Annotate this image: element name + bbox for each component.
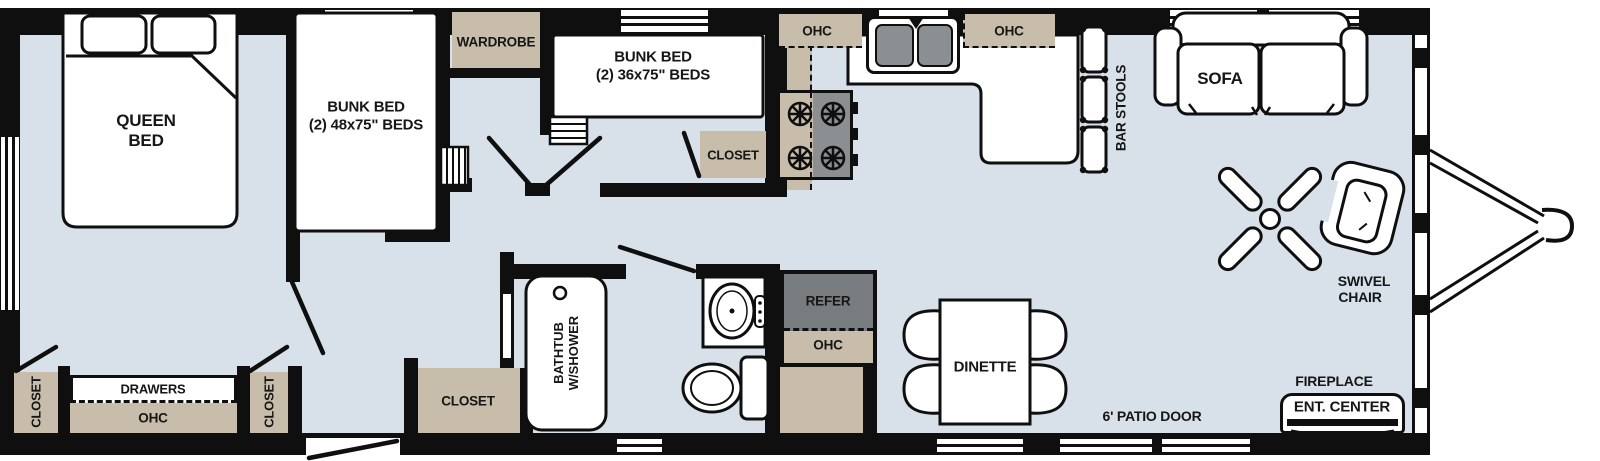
refer-label: REFER <box>806 294 851 309</box>
sofa-label: SOFA <box>1197 69 1243 89</box>
bunk48-label-line2: (2) 48x75" BEDS <box>309 117 423 134</box>
stove-notch <box>853 128 858 140</box>
closet-bunk-label: CLOSET <box>707 148 759 163</box>
window <box>937 436 1023 452</box>
closet-bottom-right-label: CLOSET <box>262 376 277 428</box>
wall-refer-left <box>765 265 780 433</box>
queen-bed-label-line1: QUEEN <box>116 111 175 131</box>
window <box>1269 10 1359 32</box>
sink-basin <box>917 24 953 67</box>
queen-bed-label-line2: BED <box>128 131 163 151</box>
wall-stub <box>288 366 302 433</box>
wall-stub <box>58 366 70 433</box>
ohc-kitchen-right-label: OHC <box>994 24 1023 39</box>
wall-bedroom-divider <box>286 35 300 282</box>
bunk36-label-line1: BUNK BED <box>614 49 692 66</box>
wall-stub <box>237 366 250 433</box>
dinette-label: DINETTE <box>954 359 1017 376</box>
closet-mid-label: CLOSET <box>441 394 495 409</box>
swivel-chair-label-line1: SWIVEL <box>1338 273 1390 289</box>
wall-refer-right <box>863 367 877 433</box>
ohc-drawers-label: OHC <box>138 411 167 426</box>
sink-basin <box>875 24 914 67</box>
stove-notch <box>853 102 858 114</box>
wall-right-block <box>1412 433 1430 455</box>
pocket-door <box>501 292 513 360</box>
wall-closet-mid-left <box>404 358 418 433</box>
wall-hall-stub <box>525 183 550 196</box>
wall-right-block <box>1412 48 1430 68</box>
window <box>617 436 662 452</box>
window <box>325 10 413 32</box>
window <box>1 137 19 310</box>
wall-bunk36-bottom <box>600 183 787 197</box>
stove <box>777 90 853 180</box>
bunk48-label-line1: BUNK BED <box>327 99 405 116</box>
bunk36-label-line2: (2) 36x75" BEDS <box>596 67 710 84</box>
fireplace-bar <box>1287 419 1398 426</box>
bathtub-label-line1: BATHTUB <box>551 316 566 390</box>
patio-door-panel <box>1162 436 1250 452</box>
patio-door-label: 6' PATIO DOOR <box>1103 408 1202 424</box>
stove-dash-line <box>810 92 812 178</box>
kitchen-sink <box>866 16 960 74</box>
wardrobe-label: WARDROBE <box>457 35 536 50</box>
closet-bottom-left-label: CLOSET <box>29 376 44 428</box>
wall-wardrobe-bottom <box>450 68 540 78</box>
floorplan-canvas: QUEEN BED BUNK BED (2) 48x75" BEDS WARDR… <box>0 0 1600 461</box>
wall-closet-mid-right <box>520 368 533 433</box>
patio-door-panel <box>1060 436 1152 452</box>
wall-wardrobe-right <box>540 8 553 135</box>
drawers-label: DRAWERS <box>120 382 185 397</box>
trailer-hitch <box>1430 150 1572 312</box>
wall-right-block <box>1412 295 1430 315</box>
ohc-kitchen-left-label: OHC <box>802 24 831 39</box>
window <box>621 10 708 32</box>
bathtub-label-line2: W/SHOWER <box>566 316 581 390</box>
refer-lower-cabinet <box>780 367 863 433</box>
ent-center-label: ENT. CENTER <box>1294 399 1390 416</box>
wall-ladder-base <box>438 178 472 192</box>
window <box>1170 10 1257 32</box>
bathtub-label: BATHTUB W/SHOWER <box>551 316 581 390</box>
stove-notch <box>853 154 858 166</box>
wall-right-block <box>1412 388 1430 408</box>
entry-door-opening <box>306 435 400 461</box>
wall-bath-top-left <box>514 264 626 279</box>
wall-right-block <box>1412 213 1430 233</box>
wall-bunk48-right <box>437 35 450 242</box>
wall-right-block <box>1412 135 1430 155</box>
bar-stools-label: BAR STOOLS <box>1114 65 1129 151</box>
wall-right-block <box>1412 8 1430 35</box>
refer-ohc-label: OHC <box>813 338 842 353</box>
wall-bunk48-foot <box>385 230 450 242</box>
swivel-chair-label-line2: CHAIR <box>1338 289 1381 305</box>
fireplace-label: FIREPLACE <box>1295 373 1373 389</box>
